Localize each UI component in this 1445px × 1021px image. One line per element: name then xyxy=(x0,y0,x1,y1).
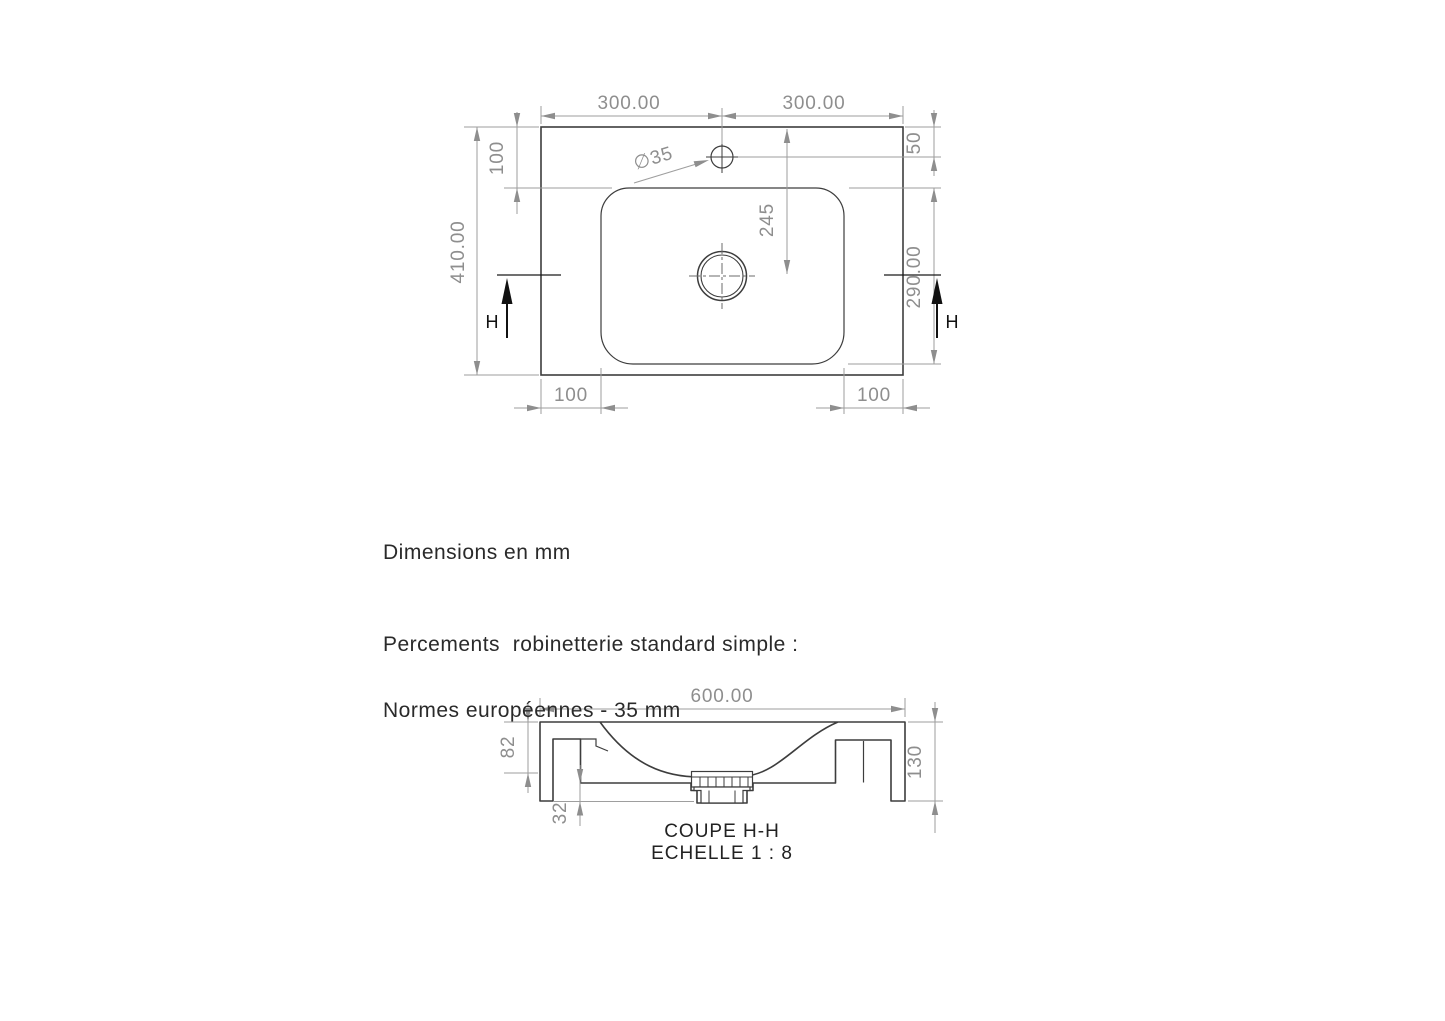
basin-outline xyxy=(601,188,844,364)
arrow xyxy=(931,350,937,364)
drawing-sheet: ∅35 300.00 300.00 100 xyxy=(0,0,1445,1021)
dim-top-to-drain-label: 245 xyxy=(757,203,778,237)
arrow xyxy=(784,260,790,274)
dim-top-to-faucet-label: 50 xyxy=(904,132,925,155)
section-cut-left: H xyxy=(486,275,562,338)
dim-top-to-drain: 245 xyxy=(757,129,790,274)
faucet-diameter-label: ∅35 xyxy=(631,143,675,175)
faucet-diameter-callout: ∅35 xyxy=(631,143,709,183)
arrow xyxy=(514,188,520,202)
dim-bottom-right-margin-label: 100 xyxy=(857,385,891,406)
dim-basin-depth-label: 290.00 xyxy=(904,246,925,309)
arrow xyxy=(577,769,583,783)
dim-top-to-basin-label: 100 xyxy=(487,141,508,175)
arrow xyxy=(474,361,480,375)
arrow xyxy=(931,113,937,127)
arrow xyxy=(474,127,480,141)
arrow xyxy=(525,773,531,787)
drilling-note-line1: Percements robinetterie standard simple … xyxy=(383,634,799,656)
arrow xyxy=(601,405,615,411)
dim-overall-depth-label: 410.00 xyxy=(448,221,469,284)
arrow xyxy=(932,801,938,815)
arrow xyxy=(830,405,844,411)
drain-fitting xyxy=(692,772,753,804)
dim-skirt-height: 32 xyxy=(550,765,583,826)
arrow xyxy=(931,188,937,202)
arrow xyxy=(932,708,938,722)
arrow xyxy=(541,113,555,119)
drilling-note-line2: Normes européennes - 35 mm xyxy=(383,700,799,722)
dim-top-to-faucet: 50 xyxy=(738,110,941,176)
dim-basin-depth: 290.00 xyxy=(848,188,941,364)
dim-left-to-faucet-label: 300.00 xyxy=(598,93,661,114)
section-label-left: H xyxy=(486,312,499,332)
top-view: ∅35 300.00 300.00 100 xyxy=(448,93,959,414)
section-title: COUPE H-H xyxy=(664,821,780,842)
drain-flange xyxy=(692,772,753,788)
arrow xyxy=(577,802,583,816)
arrow xyxy=(891,706,905,712)
arrow xyxy=(708,113,722,119)
arrow xyxy=(931,157,937,171)
arrow xyxy=(514,113,520,127)
dim-bottom-left-margin-label: 100 xyxy=(554,385,588,406)
section-scale: ECHELLE 1 : 8 xyxy=(651,843,793,864)
dim-faucet-to-right-label: 300.00 xyxy=(783,93,846,114)
dim-overall-height-label: 130 xyxy=(905,745,926,779)
arrow xyxy=(889,113,903,119)
units-note: Dimensions en mm xyxy=(383,542,799,564)
arrow xyxy=(784,129,790,143)
arrow xyxy=(527,405,541,411)
drain-hole xyxy=(689,243,755,309)
dim-skirt-height-label: 32 xyxy=(550,802,571,825)
notes-block: Dimensions en mm Percements robinetterie… xyxy=(383,498,799,744)
arrow xyxy=(903,405,917,411)
faucet-hole xyxy=(706,142,738,173)
dim-top-width: 300.00 300.00 xyxy=(541,93,903,144)
dim-overall-height: 130 xyxy=(905,702,943,833)
section-label-right: H xyxy=(946,312,959,332)
drain-body xyxy=(694,787,750,803)
leader-arrow xyxy=(694,160,709,167)
arrow xyxy=(722,113,736,119)
